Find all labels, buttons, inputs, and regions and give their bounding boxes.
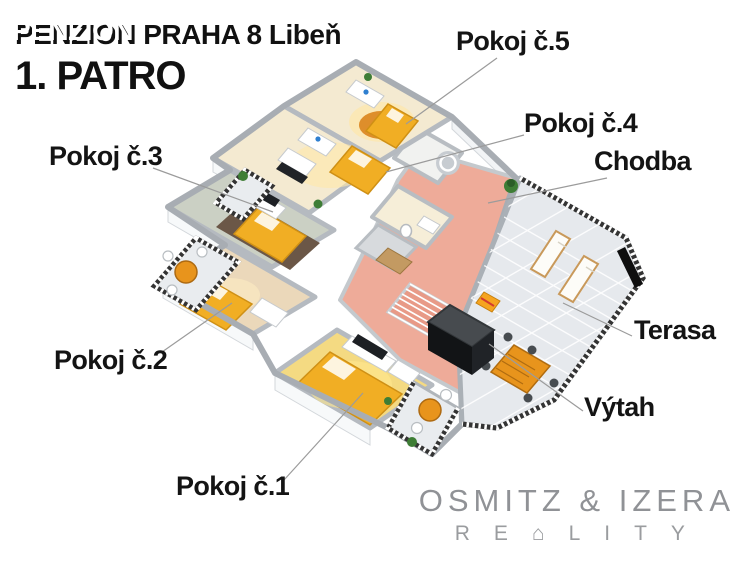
chair xyxy=(504,333,513,342)
computer-screen xyxy=(363,89,368,94)
label-pokoj-4: Pokoj č.4 xyxy=(524,108,637,139)
chair xyxy=(550,379,559,388)
label-vytah: Výtah xyxy=(584,392,655,423)
floor-title: 1. PATRO xyxy=(15,55,341,97)
chair xyxy=(524,394,533,403)
label-pokoj-1: Pokoj č.1 xyxy=(176,471,289,502)
computer-screen xyxy=(315,136,320,141)
title-glitch-overlay: PENZION xyxy=(12,16,133,45)
toilet xyxy=(401,225,412,238)
chair xyxy=(528,346,537,355)
brand-logo: OSMITZ & IZERA RE⌂LITY xyxy=(419,483,735,546)
label-pokoj-5: Pokoj č.5 xyxy=(456,26,569,57)
label-terasa: Terasa xyxy=(634,315,715,346)
chair xyxy=(441,390,452,401)
screenshot-root: PENZION PRAHA 8 Libeň PENZION 1. PATRO P… xyxy=(0,0,749,562)
chair xyxy=(167,285,177,295)
brand-logo-name: OSMITZ & IZERA xyxy=(419,483,735,519)
label-pokoj-2: Pokoj č.2 xyxy=(54,345,167,376)
label-pokoj-3: Pokoj č.3 xyxy=(49,141,162,172)
chair xyxy=(163,251,173,261)
chair xyxy=(412,423,423,434)
page-title: PENZION PRAHA 8 Libeň PENZION xyxy=(15,20,341,49)
round-table xyxy=(175,261,197,283)
header: PENZION PRAHA 8 Libeň PENZION 1. PATRO xyxy=(15,20,341,97)
brand-logo-tagline: RE⌂LITY xyxy=(419,522,735,546)
plant xyxy=(238,171,248,181)
label-chodba: Chodba xyxy=(594,146,691,177)
round-table xyxy=(419,399,441,421)
plant xyxy=(407,437,417,447)
chair xyxy=(197,247,207,257)
